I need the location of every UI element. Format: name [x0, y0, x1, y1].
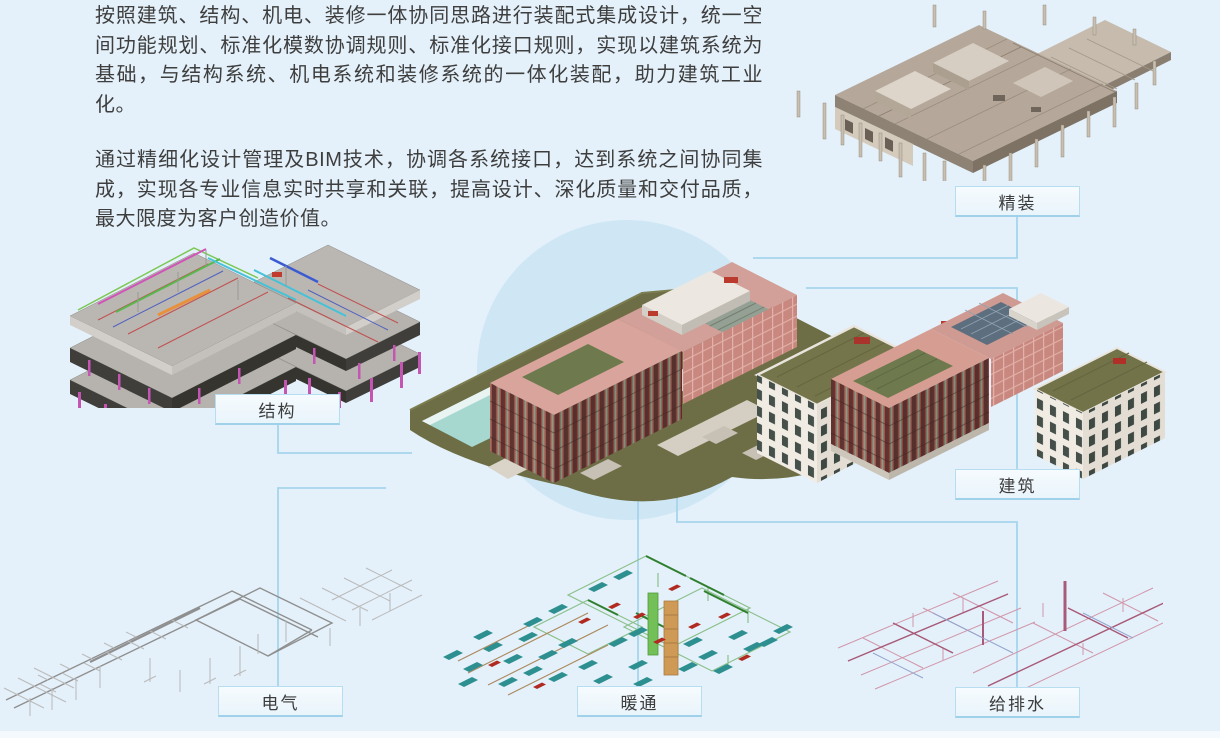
- plumbing-mesh-blue: [873, 613, 1133, 678]
- bim-collaboration-infographic: 按照建筑、结构、机电、装修一体协同思路进行装配式集成设计，统一空间功能规划、标准…: [0, 0, 1220, 738]
- intro-text: 按照建筑、结构、机电、装修一体协同思路进行装配式集成设计，统一空间功能规划、标准…: [95, 2, 763, 261]
- label-jianzhu: 建筑: [955, 469, 1080, 500]
- hvac-teal-segments: [443, 570, 793, 687]
- electrical-branches: [4, 568, 422, 716]
- hvac-pipes: [458, 613, 608, 695]
- label-jingzhuang: 精装: [955, 186, 1080, 217]
- plumbing-mesh-light: [838, 581, 1163, 699]
- hvac-risers: [648, 593, 678, 675]
- intro-paragraph-2: 通过精细化设计管理及BIM技术，协调各系统接口，达到系统之间协同集成，实现各专业…: [95, 146, 763, 235]
- model-jingzhuang-fit-out: [783, 3, 1183, 181]
- connector-jiegou: [278, 425, 412, 453]
- bottom-strip: [0, 731, 1220, 738]
- model-dianqi-electrical: [0, 538, 432, 726]
- label-nuantong: 暖通: [577, 686, 702, 717]
- label-geipaishui: 给排水: [955, 687, 1080, 718]
- hvac-duct-frames: [534, 556, 790, 671]
- plumbing-mesh-dark: [848, 581, 1163, 686]
- label-jiegou: 结构: [215, 394, 340, 425]
- intro-paragraph-1: 按照建筑、结构、机电、装修一体协同思路进行装配式集成设计，统一空间功能规划、标准…: [95, 2, 763, 120]
- model-geipaishui-plumbing: [833, 553, 1163, 705]
- label-dianqi: 电气: [218, 686, 343, 717]
